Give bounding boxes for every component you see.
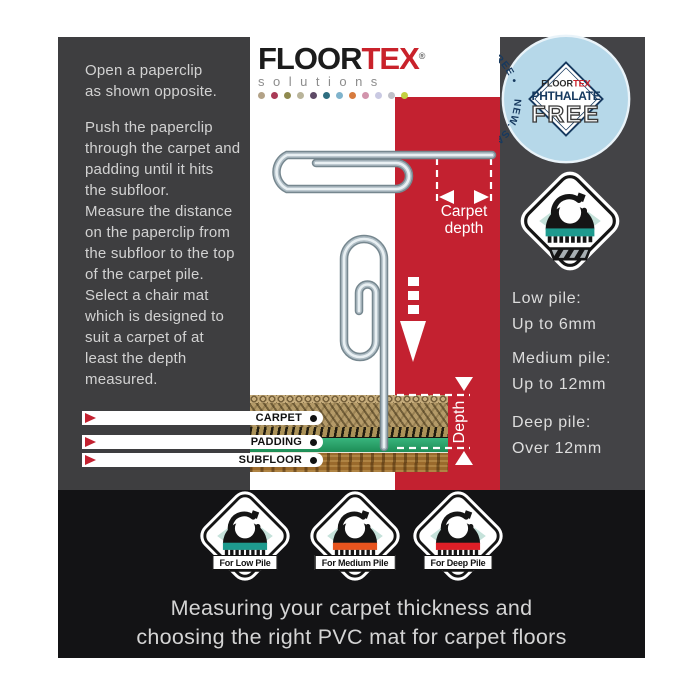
layer-label: PADDING xyxy=(251,436,302,448)
pile-value: Up to 12mm xyxy=(512,372,642,398)
depth-label: Depth xyxy=(451,392,471,452)
caption-line2: choosing the right PVC mat for carpet fl… xyxy=(58,623,645,652)
logo-dot xyxy=(258,92,265,99)
caption-line1: Measuring your carpet thickness and xyxy=(58,594,645,623)
logo-wordmark: FLOORTEX® xyxy=(258,42,428,73)
layer-label: CARPET xyxy=(256,412,302,424)
label-dot xyxy=(310,439,317,446)
mat-icon-label-medium: For Medium Pile xyxy=(315,555,396,570)
instruction-line: which is designed to xyxy=(85,306,245,327)
instruction-line: least the depth xyxy=(85,348,245,369)
red-arrow-icon xyxy=(85,455,96,465)
layer-label: SUBFLOOR xyxy=(239,454,302,466)
subfloor-label-bar: SUBFLOOR xyxy=(82,453,323,467)
logo-dot xyxy=(362,92,369,99)
pile-value: Up to 6mm xyxy=(512,312,642,338)
pile-guide: Low pile: Up to 6mm Medium pile: Up to 1… xyxy=(500,37,645,490)
padding-label-bar: PADDING xyxy=(82,435,323,449)
floortex-logo: FLOORTEX® solutions xyxy=(258,42,428,99)
registered-mark: ® xyxy=(419,51,426,61)
logo-dot xyxy=(336,92,343,99)
pile-title: Medium pile: xyxy=(512,346,642,372)
pile-title: Low pile: xyxy=(512,286,642,312)
logo-dot xyxy=(349,92,356,99)
instruction-line: the subfloor. xyxy=(85,180,245,201)
instruction-paragraph-2: Push the paperclip through the carpet an… xyxy=(85,117,245,201)
label-dot xyxy=(310,415,317,422)
instruction-line: Select a chair mat xyxy=(85,285,245,306)
mat-icon-label-low: For Low Pile xyxy=(212,555,277,570)
pile-guide-deep: Deep pile: Over 12mm xyxy=(512,410,642,462)
carpet-pile-loops xyxy=(250,395,448,403)
carpet-label-bar: CARPET xyxy=(82,411,323,425)
logo-dot xyxy=(388,92,395,99)
red-arrow-icon xyxy=(85,437,96,447)
instruction-paragraph-4: Select a chair mat which is designed to … xyxy=(85,285,245,390)
logo-dot xyxy=(297,92,304,99)
red-arrow-icon xyxy=(85,413,96,423)
instruction-line: Open a paperclip xyxy=(85,60,245,81)
instruction-paragraph-1: Open a paperclip as shown opposite. xyxy=(85,60,245,102)
carpet-depth-label: Carpet depth xyxy=(425,203,503,237)
logo-dot xyxy=(323,92,330,99)
instruction-line: padding until it hits xyxy=(85,159,245,180)
instruction-line: on the paperclip from xyxy=(85,222,245,243)
carpet-depth-line1: Carpet xyxy=(425,203,503,220)
instruction-line: through the carpet and xyxy=(85,138,245,159)
instruction-line: the subfloor to the top xyxy=(85,243,245,264)
label-dot xyxy=(310,457,317,464)
carpet-depth-line2: depth xyxy=(425,220,503,237)
pile-value: Over 12mm xyxy=(512,436,642,462)
instruction-line: measured. xyxy=(85,369,245,390)
logo-dots xyxy=(258,92,428,99)
instruction-line: of the carpet pile. xyxy=(85,264,245,285)
logo-dot xyxy=(271,92,278,99)
pile-title: Deep pile: xyxy=(512,410,642,436)
instruction-line: Push the paperclip xyxy=(85,117,245,138)
footer-caption: Measuring your carpet thickness and choo… xyxy=(58,594,645,652)
instruction-line: suit a carpet of at xyxy=(85,327,245,348)
mat-icon-label-deep: For Deep Pile xyxy=(424,555,493,570)
logo-dot xyxy=(401,92,408,99)
logo-dot xyxy=(284,92,291,99)
instruction-paragraph-3: Measure the distance on the paperclip fr… xyxy=(85,201,245,285)
pile-guide-low: Low pile: Up to 6mm xyxy=(512,286,642,338)
infographic-page: Open a paperclip as shown opposite. Push… xyxy=(0,0,700,700)
logo-tex: TEX xyxy=(362,41,419,76)
pile-guide-medium: Medium pile: Up to 12mm xyxy=(512,346,642,398)
instruction-line: Measure the distance xyxy=(85,201,245,222)
logo-floor: FLOOR xyxy=(258,41,362,76)
logo-dot xyxy=(310,92,317,99)
logo-solutions: solutions xyxy=(258,74,428,89)
logo-dot xyxy=(375,92,382,99)
instruction-line: as shown opposite. xyxy=(85,81,245,102)
